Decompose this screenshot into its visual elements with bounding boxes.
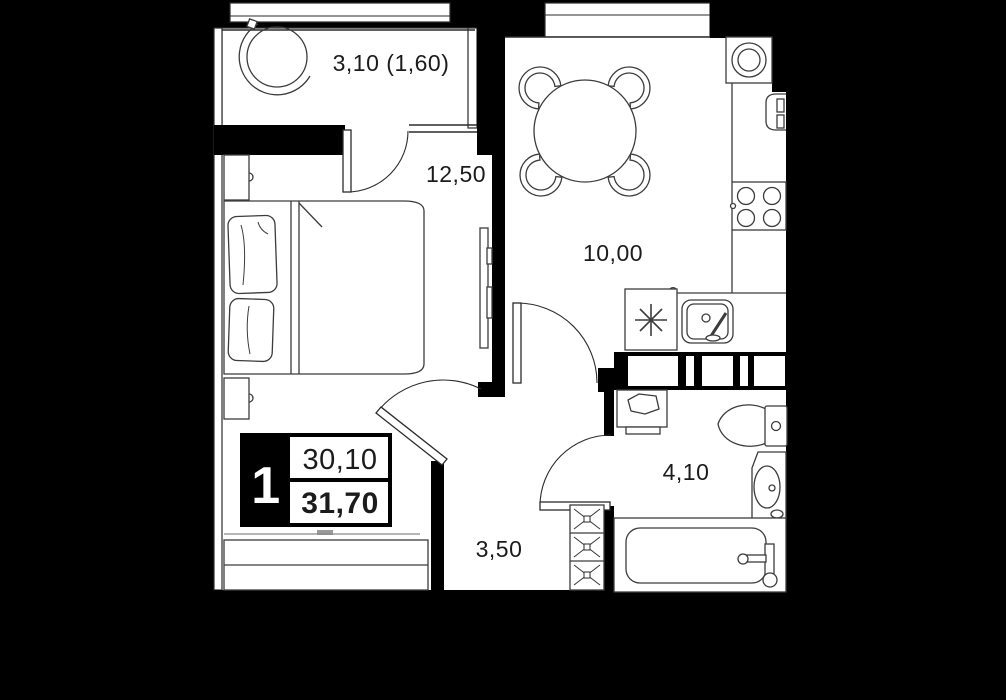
total-area-value: 31,70	[301, 487, 379, 520]
fridge-icon	[766, 94, 786, 130]
hallway-area-label: 3,50	[476, 536, 523, 562]
bathroom-cabinet-icon	[617, 390, 667, 434]
kitchen-area-label: 10,00	[583, 240, 643, 266]
living-area-value: 30,10	[302, 444, 377, 476]
left-thin-wall	[214, 28, 222, 590]
pillow-icon	[228, 215, 278, 294]
pillow-icon	[228, 298, 274, 361]
stove-icon	[731, 182, 787, 230]
wall-balcony-bedroom	[214, 125, 345, 155]
bathtub-icon	[614, 518, 786, 592]
floor-plan-canvas: 1 30,10 31,70 3,10 (1,60) 12,50 10,00 4,…	[0, 0, 1006, 700]
double-bed-icon	[224, 201, 424, 374]
kitchen-sink-icon	[726, 37, 772, 83]
balcony-area-label: 3,10 (1,60)	[333, 50, 450, 76]
balcony-right-thin-wall	[468, 28, 477, 128]
floor-plan: 1 30,10 31,70 3,10 (1,60) 12,50 10,00 4,…	[0, 0, 1006, 700]
vent-shaft-icon	[570, 505, 604, 590]
rooms-count: 1	[251, 457, 280, 515]
toilet-icon	[718, 405, 787, 446]
washing-machine-icon	[625, 288, 677, 350]
wall-stub-bedroom-door	[478, 382, 505, 397]
wall-right	[786, 30, 804, 602]
wall-hallway-bedroom	[431, 461, 444, 592]
wall-bedroom-kitchen	[492, 148, 505, 385]
wall-bathroom-left-bottom	[604, 506, 614, 594]
sink-faucet-icon	[682, 300, 733, 343]
dining-table-icon	[534, 80, 636, 182]
bedroom-area-label: 12,50	[426, 161, 486, 187]
nightstand-icon	[224, 155, 253, 200]
washbasin-icon	[752, 452, 786, 522]
wall-bathroom-left-top	[604, 390, 614, 436]
bathroom-area-label: 4,10	[663, 459, 710, 485]
balcony-railing	[230, 3, 450, 22]
room-balcony-floor	[222, 28, 475, 128]
info-badge: 1 30,10 31,70	[240, 433, 390, 527]
nightstand-icon	[224, 378, 253, 419]
vent-shaft-icon	[628, 356, 785, 386]
wall-stub-kitchen-door	[598, 368, 614, 392]
kitchen-window-sill	[545, 3, 710, 37]
wall-pier-balcony-kitchen	[477, 0, 505, 155]
